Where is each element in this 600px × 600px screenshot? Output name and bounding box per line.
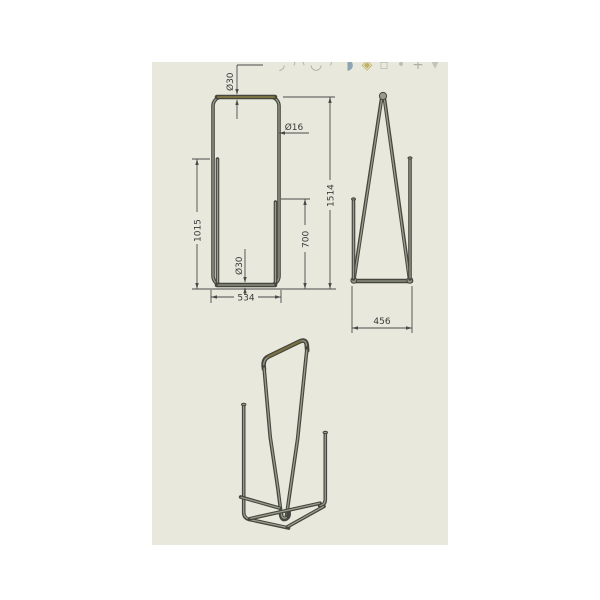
iso-base-rails-tube[interactable] <box>241 497 324 528</box>
side-left-post-tube[interactable] <box>352 198 356 279</box>
dim-right-post-height[interactable]: 700 <box>281 199 312 289</box>
dim-text-534: 534 <box>237 294 254 304</box>
dim-text-dia-top: Ø30 <box>225 72 236 91</box>
front-view: Ø30 Ø16 1015 <box>192 65 337 304</box>
cad-canvas[interactable]: ◞ ◠ ◡ ◜ ◗ ◈ ▫ • + ▾ <box>152 62 448 545</box>
dim-diameter-tube[interactable]: Ø16 <box>279 122 309 135</box>
dim-diameter-bottom[interactable]: Ø30 <box>234 249 247 295</box>
isometric-view <box>241 341 328 528</box>
side-aframe-tube[interactable] <box>354 92 410 279</box>
front-loop-tube[interactable] <box>213 97 279 285</box>
dim-text-1514: 1514 <box>327 184 337 207</box>
drawing-page: ◞ ◠ ◡ ◜ ◗ ◈ ▫ • + ▾ <box>0 0 600 600</box>
dim-text-dia-bottom: Ø30 <box>234 256 245 275</box>
side-right-post-tube[interactable] <box>408 157 412 279</box>
dim-text-1015: 1015 <box>194 219 204 242</box>
apex-tube-end <box>379 92 386 99</box>
dim-text-456: 456 <box>373 317 390 327</box>
drawing-svg: Ø30 Ø16 1015 <box>152 62 448 545</box>
side-view: 456 <box>351 92 413 333</box>
dim-diameter-top[interactable]: Ø30 <box>225 65 263 119</box>
dim-base-depth[interactable]: 456 <box>352 286 412 333</box>
dim-text-dia-tube: Ø16 <box>285 122 304 133</box>
iso-loop-tube[interactable] <box>264 341 308 519</box>
dim-text-700: 700 <box>302 231 312 248</box>
side-bottom-tube[interactable] <box>351 277 413 283</box>
iso-left-post-tube[interactable] <box>242 403 250 519</box>
dim-left-post-height[interactable]: 1015 <box>192 159 210 289</box>
iso-right-post-tube[interactable] <box>320 431 328 506</box>
